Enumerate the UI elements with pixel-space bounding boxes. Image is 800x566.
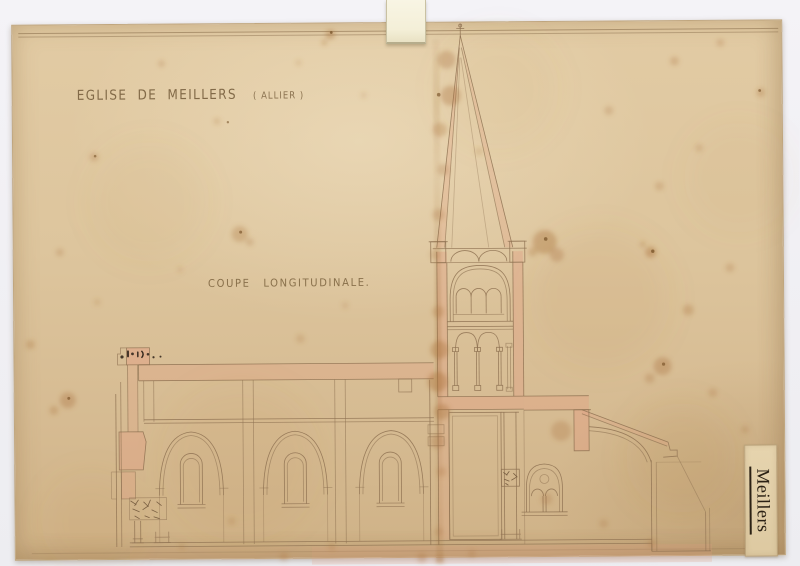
drawing-title: EGLISE DE MEILLERS ( ALLIER ) [77,86,305,104]
title-text: EGLISE DE MEILLERS [77,86,237,103]
scanned-drawing-scene: EGLISE DE MEILLERS ( ALLIER ) COUPE LONG… [0,0,800,566]
archive-label-text: Meillers [749,466,773,534]
holding-tab [386,0,426,44]
paper-mottling [38,27,797,566]
title-region-text: ( ALLIER ) [253,90,304,102]
drawing-sheet: EGLISE DE MEILLERS ( ALLIER ) COUPE LONG… [0,0,800,566]
section-caption: COUPE LONGITUDINALE. [208,277,371,290]
archive-label: Meillers [744,444,778,556]
church-section-drawing [0,0,800,566]
